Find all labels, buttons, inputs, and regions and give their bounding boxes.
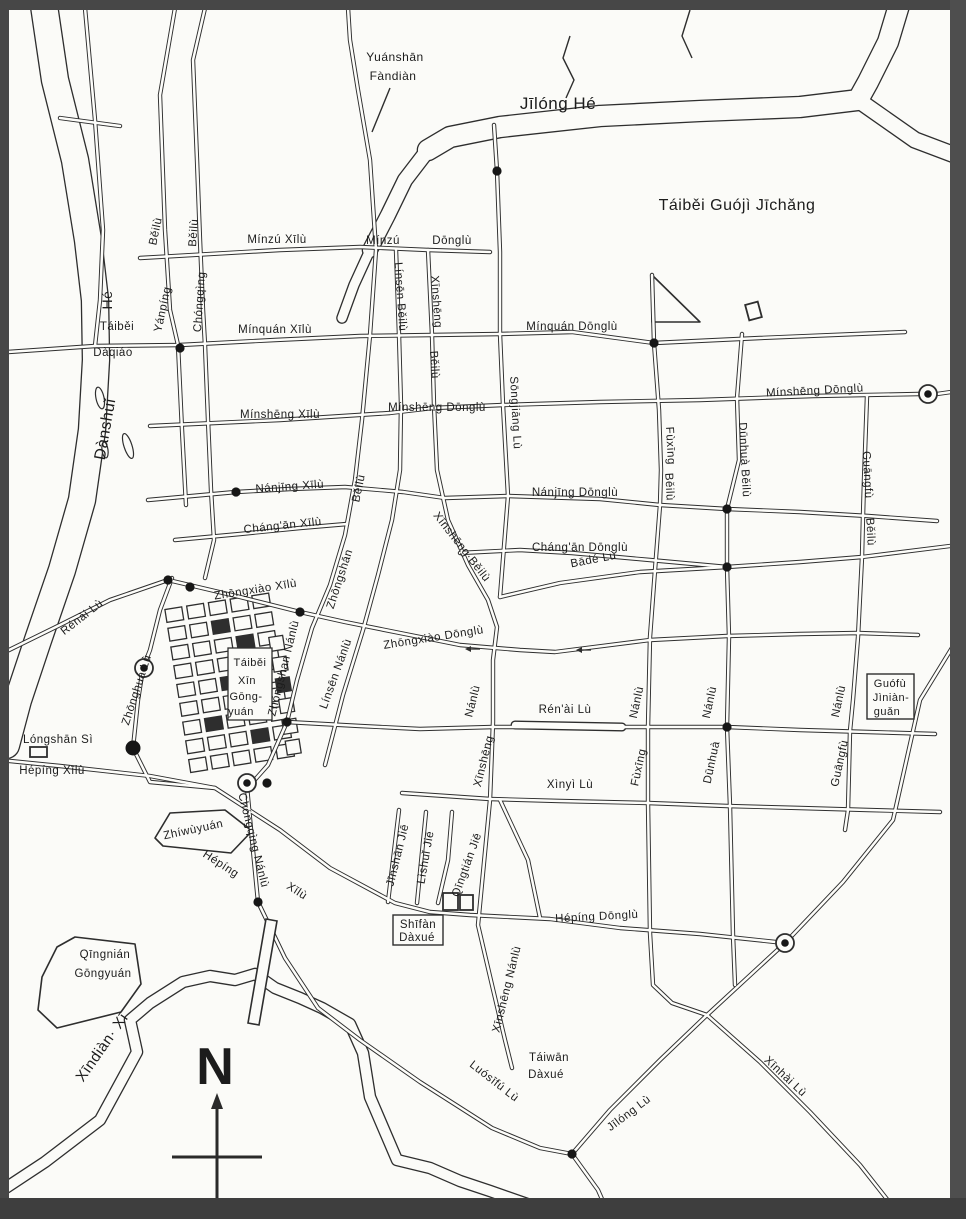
map-label-d-ngl-: Dōnglù [432, 235, 471, 247]
city-block [177, 682, 196, 697]
map-label-f-ndi-n: Fàndiàn [370, 69, 417, 83]
map-label-b-il-: Běilù [863, 518, 876, 547]
map-label-j-l-ng-h-: Jīlóng Hé [520, 94, 596, 113]
city-block [251, 728, 270, 743]
map-label-m-nqu-n-x-l-: Mínquán Xīlù [238, 324, 312, 336]
city-block [201, 697, 220, 712]
map-label-g-ngyu-n: Gōngyuán [74, 968, 131, 980]
map-label-d-xu-: Dàxué [528, 1069, 564, 1081]
intersection-dot [282, 717, 291, 726]
map-label-x-ny-l-: Xìnyì Lù [547, 779, 593, 791]
map-border-left [0, 0, 9, 1219]
city-block [190, 622, 209, 637]
map-border-top [0, 0, 966, 10]
map-label-b-il-: Běilù [427, 350, 441, 379]
map-border-right [950, 0, 966, 1219]
city-block [187, 603, 206, 618]
intersection-dot [175, 343, 184, 352]
intersection-dot [492, 166, 501, 175]
map-label-m-nsh-ng-d-ngl-: Mínshēng Dōnglù [388, 402, 486, 414]
intersection-dot [231, 487, 240, 496]
city-block [180, 701, 199, 716]
map-label-sh-f-n: Shīfàn [400, 919, 436, 931]
map-label-gu-ngf-: Guāngfù [860, 451, 874, 499]
map-paper [0, 0, 966, 1219]
map-label-m-nz-: Mínzú [366, 235, 400, 247]
city-block [210, 754, 229, 769]
map-label-g-ng-: Gōng- [229, 691, 262, 703]
city-block [232, 750, 251, 765]
map-label-l-ngsh-n-s-: Lóngshān Sì [23, 734, 93, 746]
map-label-h-: Hé [99, 291, 115, 310]
intersection-dot [722, 504, 731, 513]
city-block [174, 663, 193, 678]
intersection-dot [295, 607, 304, 616]
building-c [745, 302, 762, 321]
map-label-yu-n: yuán [228, 706, 254, 718]
city-block [208, 600, 227, 615]
city-block [189, 757, 208, 772]
ring-marker-dot [781, 939, 789, 947]
ring-marker-dot [924, 390, 932, 398]
map-label-j-ni-n-: Jìniàn- [873, 692, 910, 704]
city-block [193, 641, 212, 656]
map-label-gu-f-: Guófù [874, 678, 906, 690]
major-intersection-dot [126, 741, 141, 756]
map-label-f-x-ng: Fùxīng [663, 426, 677, 465]
intersection-dot [185, 582, 194, 591]
map-label-r-n-i-l-: Rén'ài Lù [539, 704, 592, 716]
taipei-map-svg: NYuánshānFàndiànJīlóng HéTáiběi Guójì Jī… [0, 0, 966, 1219]
city-block [204, 716, 223, 731]
map-label-t-ib-i: Táiběi [234, 657, 267, 669]
city-block [168, 626, 187, 641]
road-renai-widened-section [515, 725, 622, 727]
city-block [211, 619, 230, 634]
map-label-h-p-ng-x-l-: Hépíng Xīlù [19, 765, 85, 777]
map-label-m-nz-x-l-: Mínzú Xīlù [247, 234, 306, 246]
intersection-dot [722, 562, 731, 571]
longshan-si-building [30, 747, 47, 757]
map-label-gu-n: guǎn [874, 706, 900, 718]
city-block [196, 660, 215, 675]
city-block [233, 615, 252, 630]
map-frame: NYuánshānFàndiànJīlóng HéTáiběi Guójì Jī… [0, 0, 966, 1219]
city-block [255, 612, 274, 627]
building-b [460, 895, 473, 910]
intersection-dot [253, 897, 262, 906]
city-block [229, 731, 248, 746]
map-label-n-nj-ng-d-ngl-: Nánjīng Dōnglù [532, 487, 618, 499]
map-label-yu-nsh-n: Yuánshān [366, 50, 423, 64]
map-label-t-iw-n: Táiwān [529, 1052, 569, 1064]
city-block [186, 738, 205, 753]
map-label-b-il-: Běilù [662, 473, 675, 502]
map-label-t-ib-i-gu-j-j-ch-ng: Táiběi Guójì Jīchǎng [659, 197, 816, 214]
intersection-dot [163, 575, 172, 584]
intersection-dot [567, 1149, 576, 1158]
city-block [171, 644, 190, 659]
city-block [236, 634, 255, 649]
map-label-m-nqu-n-d-ngl-: Mínquán Dōnglù [526, 321, 617, 333]
map-label-x-n: Xīn [238, 675, 256, 687]
city-block [199, 678, 218, 693]
map-label-b-il-: Běilù [187, 218, 201, 247]
intersection-dot [649, 338, 658, 347]
map-label-q-ngni-n: Qīngnián [80, 949, 131, 961]
intersection-dot [722, 722, 731, 731]
city-block [165, 607, 184, 622]
intersection-dot [262, 778, 271, 787]
map-label-d-xu-: Dàxué [399, 932, 435, 944]
city-block [207, 735, 226, 750]
city-block [183, 719, 202, 734]
ring-marker-dot [243, 779, 251, 787]
map-border-bottom [0, 1198, 966, 1219]
map-label-d-qi-o: Dàqiáo [93, 347, 132, 359]
city-block [285, 739, 301, 755]
map-label-t-ib-i: Táiběi [100, 321, 134, 333]
compass-north-letter: N [196, 1038, 234, 1096]
map-label-m-nsh-ng-x-l-: Mínshēng Xīlù [240, 409, 320, 421]
